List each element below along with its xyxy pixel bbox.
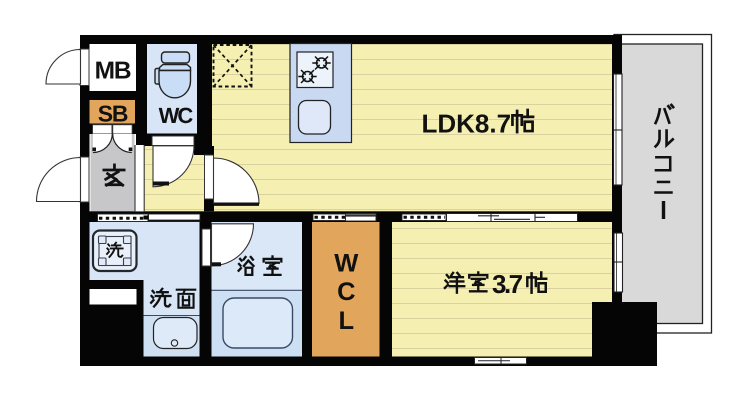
svg-text:MB: MB — [95, 58, 131, 85]
svg-text:WC: WC — [159, 103, 194, 128]
svg-text:L: L — [339, 307, 355, 335]
svg-text:C: C — [337, 278, 355, 306]
svg-text:LDK8.7: LDK8.7 — [422, 109, 512, 139]
svg-text:SB: SB — [98, 101, 128, 127]
svg-text:3.7: 3.7 — [492, 269, 523, 299]
svg-text:W: W — [334, 250, 359, 278]
